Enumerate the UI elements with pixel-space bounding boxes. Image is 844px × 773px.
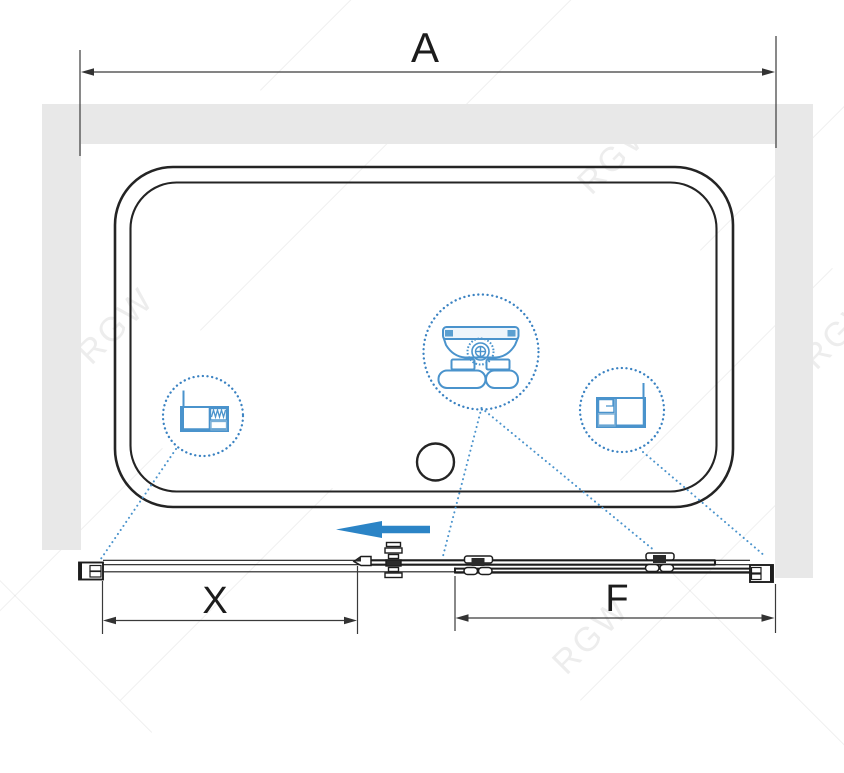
knob-disc <box>389 568 399 572</box>
drain-circle <box>417 444 454 481</box>
knob-disc-dark <box>386 560 401 566</box>
roller-wheel <box>479 568 493 575</box>
wall-top <box>42 104 813 144</box>
roller-wheel <box>464 568 478 575</box>
detail-circle-right <box>580 368 664 452</box>
dim-f-arrow-right <box>762 614 775 622</box>
tray-outer-edge <box>115 167 733 507</box>
track-assembly <box>79 543 773 583</box>
roller-pin <box>472 558 485 566</box>
fixed-panel <box>455 568 750 574</box>
leader-roller-1 <box>443 408 482 556</box>
dim-a-arrow-left <box>81 68 94 76</box>
dim-x-arrow-left <box>103 617 116 625</box>
roller-carriage-icon <box>439 327 519 388</box>
dim-x-arrow-right <box>344 617 357 625</box>
tray-inner-edge <box>131 183 717 492</box>
roller-wheel <box>646 565 660 572</box>
diagram-linework <box>0 0 844 678</box>
knob-disc <box>385 548 402 553</box>
wall-profile-cross-section-icon <box>181 391 228 432</box>
dim-label-fixed-panel: F <box>572 580 662 618</box>
knob-disc <box>385 573 402 578</box>
knob-disc <box>389 555 399 559</box>
panel-profile-cross-section-icon <box>597 383 645 427</box>
slide-direction-arrow-icon <box>336 521 430 538</box>
dim-a-arrow-right <box>762 68 775 76</box>
knob-disc <box>387 543 401 547</box>
dim-f-arrow-left <box>456 614 469 622</box>
roller-wheel <box>660 565 674 572</box>
leader-right-profile <box>643 452 766 557</box>
leader-left-profile <box>101 449 177 560</box>
leader-roller-2 <box>482 408 656 551</box>
shower-tray <box>115 167 733 507</box>
roller-pin <box>653 555 666 563</box>
detail-circle-left <box>163 376 243 456</box>
roller-carriage-2 <box>646 553 675 572</box>
wall-profile-right <box>750 565 773 582</box>
dim-label-overall-width: A <box>380 27 470 69</box>
wall-right <box>775 104 813 578</box>
wall-left <box>42 104 81 550</box>
wall-profile-left <box>79 563 103 580</box>
diagram-canvas: RGW RGW RGW RGW <box>0 0 844 678</box>
dim-label-sliding-door: X <box>170 582 260 620</box>
detail-circles <box>163 295 664 457</box>
